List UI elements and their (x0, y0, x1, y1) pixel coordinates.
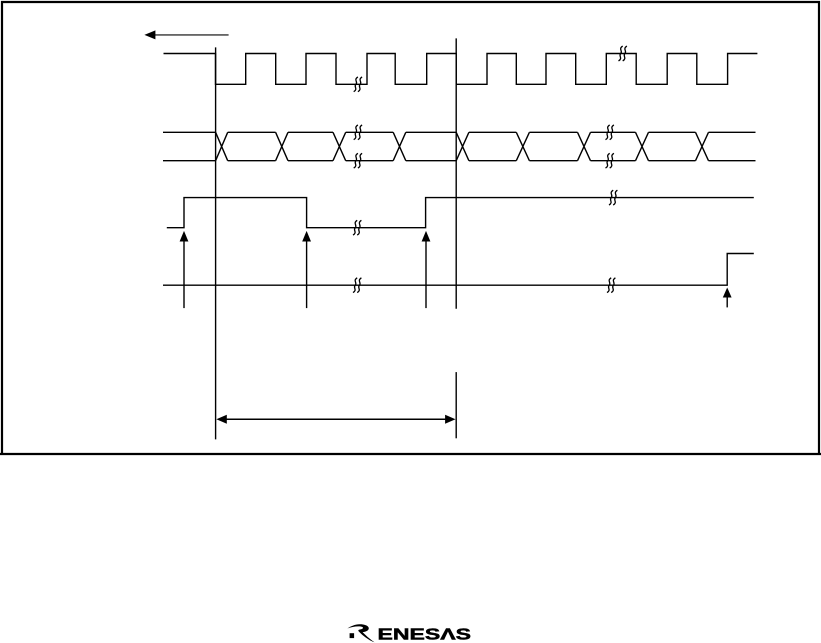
svg-text:ENESΛS: ENESΛS (378, 626, 472, 643)
